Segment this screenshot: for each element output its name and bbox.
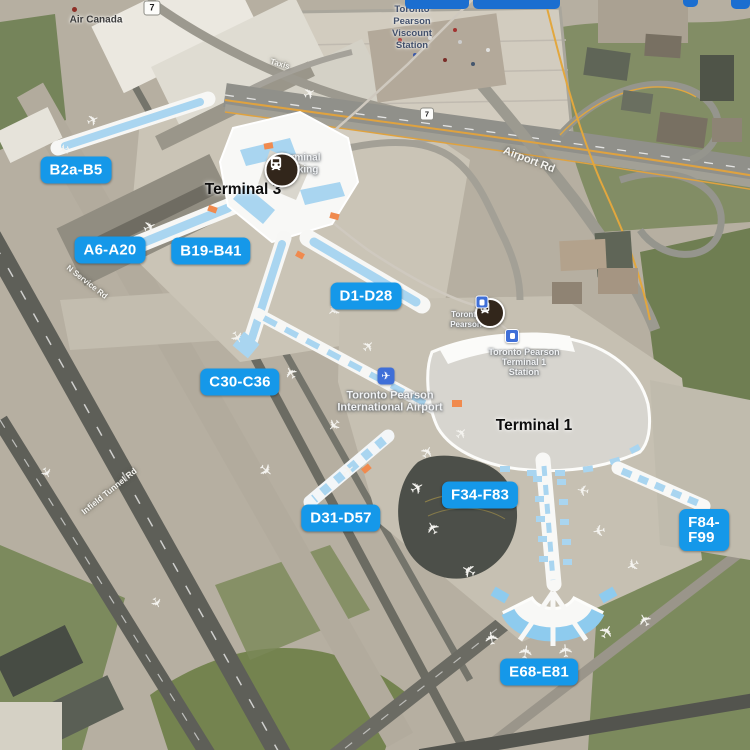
- airport-name-label: Toronto Pearson International Airport: [337, 391, 442, 414]
- satellite-imagery-layer: ✈ ✈ ✈ ✈ ✈ ✈ ✈ ✈ ✈ ✈ ✈ ✈ ✈ ✈ ✈ ✈ ✈ ✈ ✈ ✈ …: [0, 0, 750, 750]
- cutoff-label-fragment: [405, 0, 469, 9]
- gate-badge-d1-d28[interactable]: D1-D28: [331, 283, 402, 310]
- svg-text:✈: ✈: [555, 642, 577, 659]
- terminal-3-label: Terminal 3: [205, 181, 281, 199]
- terminal-1-label: Terminal 1: [496, 417, 572, 435]
- air-canada-label: Air Canada: [70, 15, 123, 26]
- airport-poi-icon[interactable]: ✈: [378, 368, 395, 385]
- gate-badge-a6-a20[interactable]: A6-A20: [75, 237, 146, 264]
- gate-badge-e68-e81[interactable]: E68-E81: [500, 659, 578, 686]
- cutoff-label-fragment: [683, 0, 698, 7]
- gate-badge-f84-f99[interactable]: F84-F99: [679, 509, 729, 551]
- gate-badge-b2a-b5[interactable]: B2a-B5: [41, 157, 112, 184]
- highway-7-shield-icon: 7: [144, 1, 161, 16]
- cutoff-label-fragment: [473, 0, 560, 9]
- highway-7-shield-icon: 7: [420, 108, 434, 121]
- train-glyph: [267, 155, 286, 174]
- gate-badge-c30-c36[interactable]: C30-C36: [200, 369, 279, 396]
- viscount-station-label: Toronto Pearson Viscount Station: [392, 4, 432, 52]
- t3-train-station-icon[interactable]: [265, 153, 300, 188]
- gate-badge-d31-d57[interactable]: D31-D57: [301, 505, 380, 532]
- air-canada-poi-dot: [72, 7, 77, 12]
- t1-station-label: Toronto Pearson Terminal 1 Station: [488, 347, 559, 377]
- cutoff-label-fragment: [731, 0, 750, 9]
- satellite-map[interactable]: ✈ ✈ ✈ ✈ ✈ ✈ ✈ ✈ ✈ ✈ ✈ ✈ ✈ ✈ ✈ ✈ ✈ ✈ ✈ ✈ …: [0, 0, 750, 750]
- transit-stop-icon[interactable]: [476, 296, 489, 309]
- gate-badge-f34-f83[interactable]: F34-F83: [442, 482, 518, 509]
- gate-badge-b19-b41[interactable]: B19-B41: [171, 238, 250, 265]
- transit-stop-icon[interactable]: [505, 329, 519, 343]
